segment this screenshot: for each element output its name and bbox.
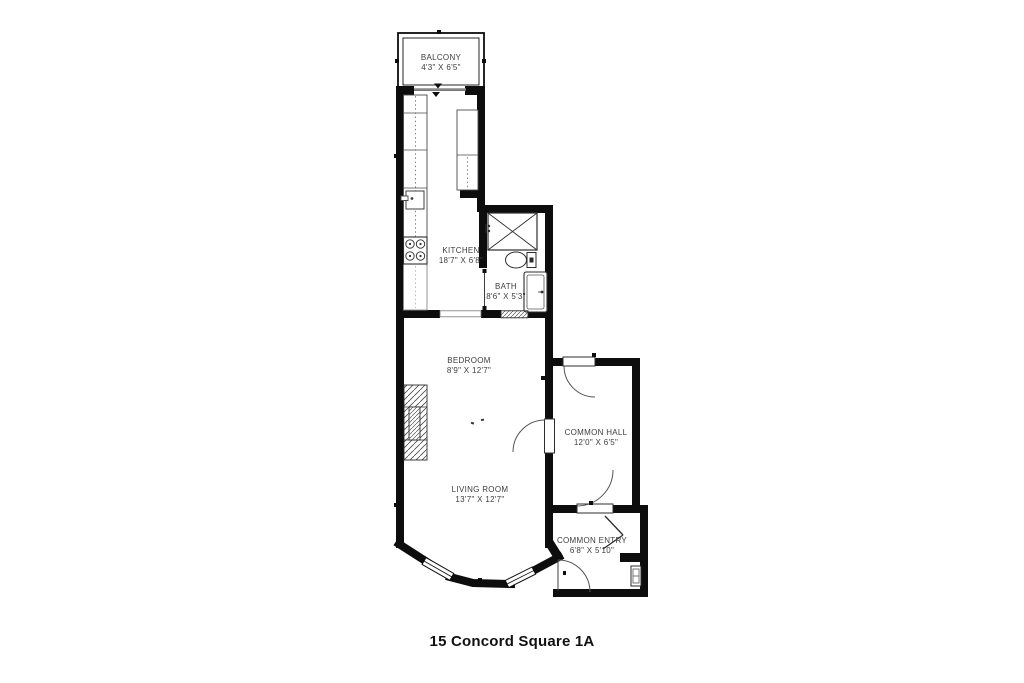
room-dims: 4'3" X 6'5" xyxy=(421,63,461,73)
hall-bottom-door xyxy=(577,470,613,513)
toilet xyxy=(506,252,537,268)
room-dims: 8'6" X 5'3" xyxy=(486,292,526,302)
floor-plan-svg xyxy=(0,0,1024,683)
room-label-common-entry: COMMON ENTRY 6'8" X 5'10" xyxy=(557,536,627,556)
room-label-bedroom: BEDROOM 8'9" X 12'7" xyxy=(447,356,491,376)
room-dims: 12'0" X 6'5" xyxy=(565,438,628,448)
walls xyxy=(396,86,648,597)
kitchen-counter-right xyxy=(457,110,478,190)
bay-window-glass-left xyxy=(422,558,454,581)
ceiling-fixture-marks xyxy=(471,419,484,425)
room-label-balcony: BALCONY 4'3" X 6'5" xyxy=(421,53,461,73)
room-name: COMMON HALL xyxy=(565,428,628,437)
room-name: BALCONY xyxy=(421,53,461,62)
room-dims: 6'8" X 5'10" xyxy=(557,546,627,556)
room-name: KITCHEN xyxy=(442,246,479,255)
radiator xyxy=(501,311,528,318)
room-dims: 18'7" X 6'8" xyxy=(439,256,483,266)
unit-entry-door xyxy=(513,419,555,453)
plan-title: 15 Concord Square 1A xyxy=(0,633,1024,650)
kitchen-bedroom-opening xyxy=(440,311,481,317)
room-label-common-hall: COMMON HALL 12'0" X 6'5" xyxy=(565,428,628,448)
floor-plan-page: BALCONY 4'3" X 6'5" KITCHEN 18'7" X 6'8"… xyxy=(0,0,1024,683)
room-name: BEDROOM xyxy=(447,356,490,365)
hall-top-door xyxy=(563,357,595,397)
vanity-sink xyxy=(524,272,547,312)
room-name: BATH xyxy=(495,282,517,291)
bay-window-glass-right xyxy=(505,567,535,588)
room-label-living-room: LIVING ROOM 13'7" X 12'7" xyxy=(452,485,509,505)
room-dims: 8'9" X 12'7" xyxy=(447,366,491,376)
room-name: COMMON ENTRY xyxy=(557,536,627,545)
room-label-bath: BATH 8'6" X 5'3" xyxy=(486,282,526,302)
shower xyxy=(486,213,537,250)
stove xyxy=(404,237,428,264)
electrical-panel xyxy=(631,566,641,586)
fireplace xyxy=(404,385,427,460)
room-label-kitchen: KITCHEN 18'7" X 6'8" xyxy=(439,246,483,266)
room-dims: 13'7" X 12'7" xyxy=(452,495,509,505)
room-name: LIVING ROOM xyxy=(452,485,509,494)
